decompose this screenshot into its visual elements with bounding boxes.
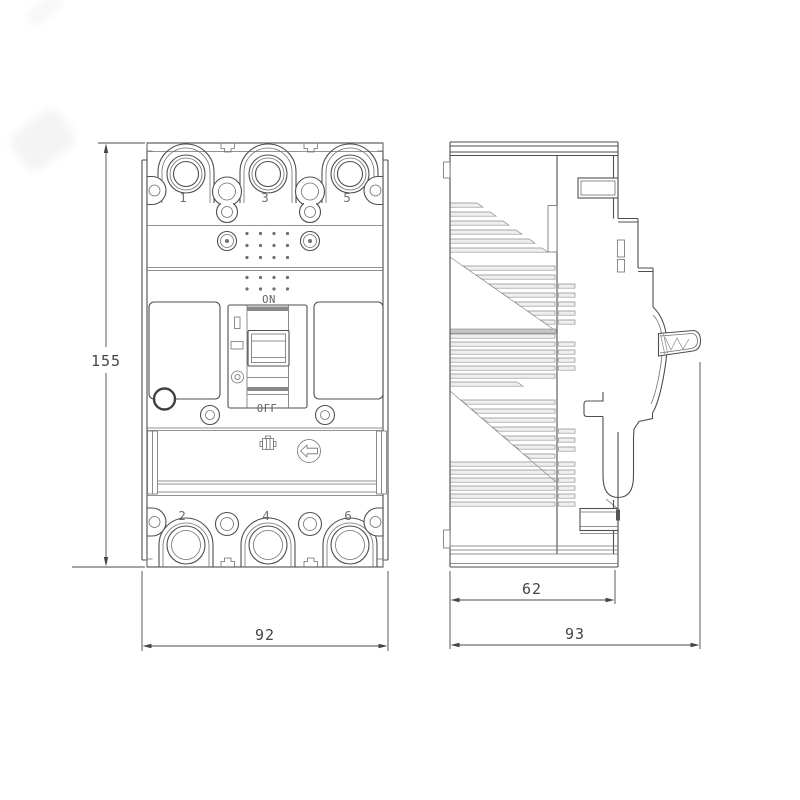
- dim-93-label: 93: [565, 625, 585, 643]
- terminal-label-5: 5: [343, 190, 351, 205]
- side-tab: [444, 162, 451, 178]
- test-button[interactable]: [154, 389, 175, 410]
- terminal-label-1: 1: [179, 190, 187, 205]
- terminal-label-6: 6: [344, 508, 352, 523]
- cover-screw: [218, 232, 237, 251]
- rating-plate-left: [149, 302, 220, 399]
- fixing-hole: [216, 513, 239, 536]
- side-tab: [444, 530, 451, 548]
- rating-plate-right: [314, 302, 383, 399]
- dim-62-label: 62: [522, 580, 542, 598]
- dim-92-label: 92: [255, 626, 275, 644]
- side-view: [444, 142, 701, 567]
- arrow-dial[interactable]: [298, 440, 321, 463]
- dimension-depth-62: 62: [450, 570, 615, 649]
- on-label: ON: [262, 294, 276, 306]
- dim-155-label: 155: [91, 352, 121, 370]
- toggle-handle-side[interactable]: [659, 331, 701, 357]
- keyhole-feature: [296, 177, 325, 223]
- fixing-hole: [299, 513, 322, 536]
- bottom-terminals: 2 4 6: [147, 508, 383, 567]
- off-label: OFF: [257, 403, 277, 415]
- cover-screw: [201, 406, 220, 425]
- front-view: 1 3 5 ON: [142, 143, 388, 567]
- toggle-switch[interactable]: ON OFF: [228, 294, 307, 415]
- cover-screw: [301, 232, 320, 251]
- terminal-label-2: 2: [178, 508, 186, 523]
- terminal-label-4: 4: [262, 508, 270, 523]
- dimension-height-155: 155: [72, 143, 145, 567]
- breaker-drawing: 1 3 5 ON: [0, 0, 800, 800]
- cover-screw: [316, 406, 335, 425]
- terminal-label-3: 3: [261, 190, 269, 205]
- technical-drawing-page: 1 3 5 ON: [0, 0, 800, 800]
- handle-boss: [653, 307, 668, 413]
- toggle-handle[interactable]: [248, 331, 289, 367]
- keyhole-feature: [213, 177, 242, 223]
- dimension-width-92: 92: [142, 571, 388, 651]
